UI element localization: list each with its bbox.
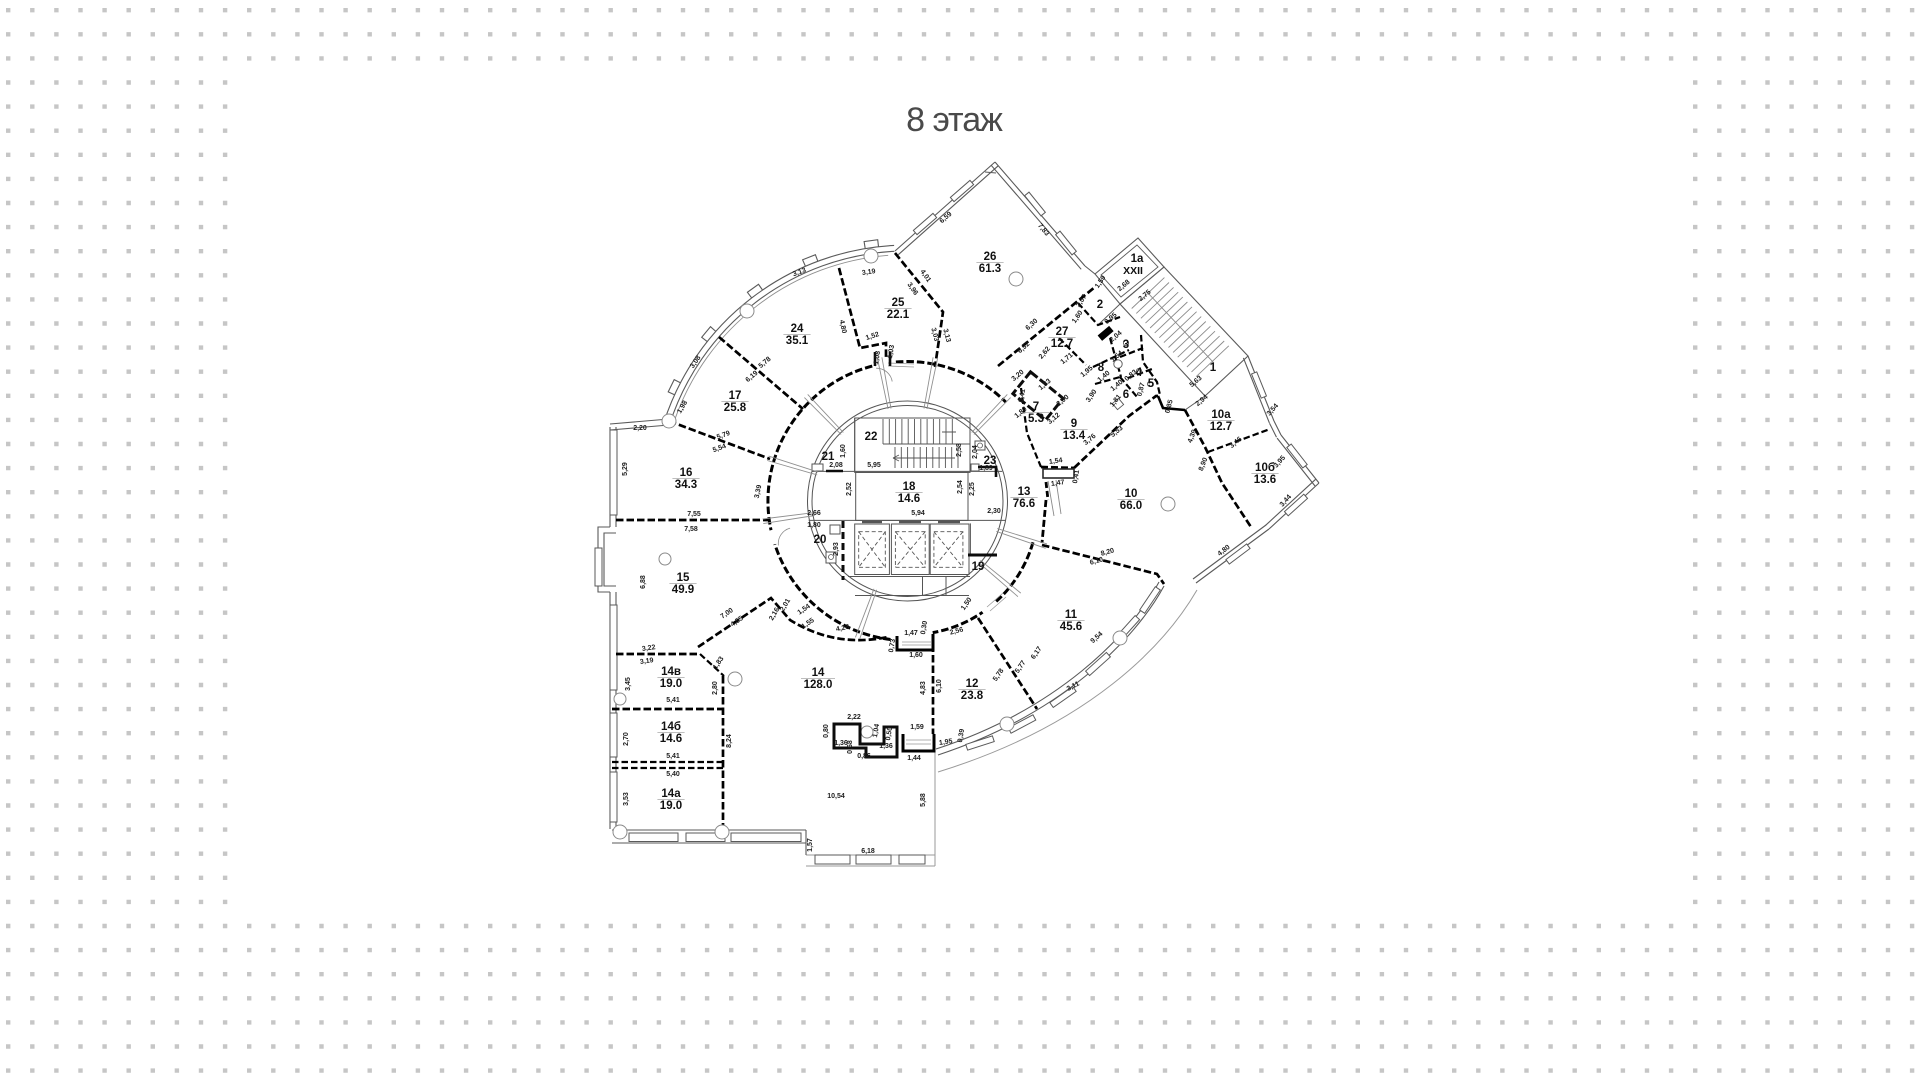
svg-text:16: 16 (680, 467, 693, 479)
svg-text:35.1: 35.1 (786, 335, 809, 347)
svg-text:1: 1 (1210, 362, 1217, 374)
svg-text:27: 27 (1056, 326, 1069, 338)
svg-text:25.8: 25.8 (724, 402, 747, 414)
svg-text:8 этаж: 8 этаж (906, 101, 1003, 139)
svg-text:2,30: 2,30 (987, 508, 1001, 515)
svg-text:2,08: 2,08 (829, 462, 843, 469)
svg-text:3,53: 3,53 (623, 792, 630, 806)
svg-text:14: 14 (812, 667, 825, 679)
svg-text:11: 11 (1065, 609, 1078, 621)
svg-text:0,80: 0,80 (823, 724, 830, 738)
svg-text:6: 6 (1123, 389, 1129, 401)
svg-text:5: 5 (1148, 378, 1155, 390)
svg-text:14б: 14б (661, 721, 681, 733)
svg-text:XXII: XXII (1123, 265, 1143, 277)
svg-text:1,60: 1,60 (840, 444, 847, 458)
svg-text:45.6: 45.6 (1060, 621, 1082, 633)
svg-text:5,41: 5,41 (666, 753, 680, 760)
svg-text:26: 26 (984, 251, 997, 263)
svg-text:1,80: 1,80 (807, 522, 821, 529)
svg-text:0,68: 0,68 (847, 740, 854, 754)
svg-text:15: 15 (677, 572, 690, 584)
svg-text:5,94: 5,94 (911, 510, 925, 517)
svg-text:10,54: 10,54 (827, 793, 845, 800)
svg-text:18: 18 (903, 481, 916, 493)
svg-text:7,55: 7,55 (687, 511, 701, 518)
svg-text:0,86: 0,86 (857, 753, 871, 760)
svg-text:10: 10 (1125, 488, 1138, 500)
svg-text:1,89: 1,89 (979, 465, 993, 472)
svg-text:2,20: 2,20 (633, 425, 647, 432)
svg-text:6,10: 6,10 (936, 679, 943, 693)
svg-text:1,60: 1,60 (909, 652, 923, 659)
svg-text:1,44: 1,44 (907, 755, 921, 762)
svg-text:2,93: 2,93 (833, 542, 840, 556)
svg-text:1,47: 1,47 (904, 630, 918, 637)
svg-text:14.6: 14.6 (898, 493, 920, 505)
svg-text:2,22: 2,22 (847, 714, 861, 721)
svg-text:9: 9 (1071, 418, 1077, 430)
svg-text:23.8: 23.8 (961, 690, 984, 702)
svg-text:14в: 14в (661, 666, 681, 678)
svg-text:61.3: 61.3 (979, 263, 1001, 275)
svg-text:22.1: 22.1 (887, 309, 910, 321)
svg-text:24: 24 (791, 323, 804, 335)
svg-text:2,52: 2,52 (846, 482, 853, 496)
svg-text:19.0: 19.0 (660, 800, 682, 812)
svg-text:2,66: 2,66 (807, 510, 821, 517)
svg-text:1,57: 1,57 (807, 838, 814, 852)
svg-text:2,54: 2,54 (957, 480, 964, 494)
svg-text:5,29: 5,29 (622, 462, 629, 476)
svg-text:19.0: 19.0 (660, 678, 682, 690)
svg-text:2,70: 2,70 (623, 732, 630, 746)
svg-text:17: 17 (729, 390, 742, 402)
svg-text:5,88: 5,88 (920, 793, 927, 807)
svg-text:12.7: 12.7 (1051, 338, 1073, 350)
svg-text:12.7: 12.7 (1210, 421, 1232, 433)
svg-text:3,45: 3,45 (625, 677, 632, 691)
svg-text:6,18: 6,18 (861, 848, 875, 855)
svg-text:76.6: 76.6 (1013, 498, 1035, 510)
svg-text:1а: 1а (1131, 253, 1144, 265)
svg-text:14а: 14а (661, 788, 681, 800)
svg-text:49.9: 49.9 (672, 584, 694, 596)
svg-text:66.0: 66.0 (1120, 500, 1142, 512)
svg-text:2,58: 2,58 (956, 443, 963, 457)
svg-text:25: 25 (892, 297, 905, 309)
svg-text:34.3: 34.3 (675, 479, 697, 491)
svg-text:12: 12 (966, 678, 979, 690)
svg-text:13.6: 13.6 (1254, 474, 1276, 486)
svg-text:14.6: 14.6 (660, 733, 682, 745)
svg-text:2: 2 (1097, 299, 1103, 311)
svg-text:1,36: 1,36 (834, 740, 848, 747)
svg-text:5,95: 5,95 (867, 462, 881, 469)
svg-text:13: 13 (1018, 486, 1031, 498)
svg-text:6,88: 6,88 (640, 575, 647, 589)
svg-text:1,59: 1,59 (910, 724, 924, 731)
svg-text:8,24: 8,24 (726, 734, 733, 748)
svg-text:2,80: 2,80 (712, 681, 719, 695)
svg-text:7: 7 (1033, 401, 1039, 413)
svg-text:22: 22 (865, 431, 878, 443)
svg-text:3: 3 (1123, 339, 1129, 351)
svg-text:19: 19 (972, 561, 985, 573)
svg-text:13.4: 13.4 (1063, 430, 1086, 442)
svg-text:20: 20 (814, 534, 827, 546)
svg-text:10б: 10б (1255, 462, 1275, 474)
svg-text:2,04: 2,04 (972, 445, 979, 459)
svg-text:1,36: 1,36 (879, 743, 893, 750)
svg-text:2,25: 2,25 (969, 482, 976, 496)
svg-text:4,83: 4,83 (920, 681, 927, 695)
svg-text:7,58: 7,58 (684, 526, 698, 533)
svg-text:5.3: 5.3 (1028, 413, 1044, 425)
svg-text:5,41: 5,41 (666, 697, 680, 704)
svg-text:5,40: 5,40 (666, 771, 680, 778)
svg-text:128.0: 128.0 (804, 679, 833, 691)
svg-text:10а: 10а (1211, 409, 1231, 421)
